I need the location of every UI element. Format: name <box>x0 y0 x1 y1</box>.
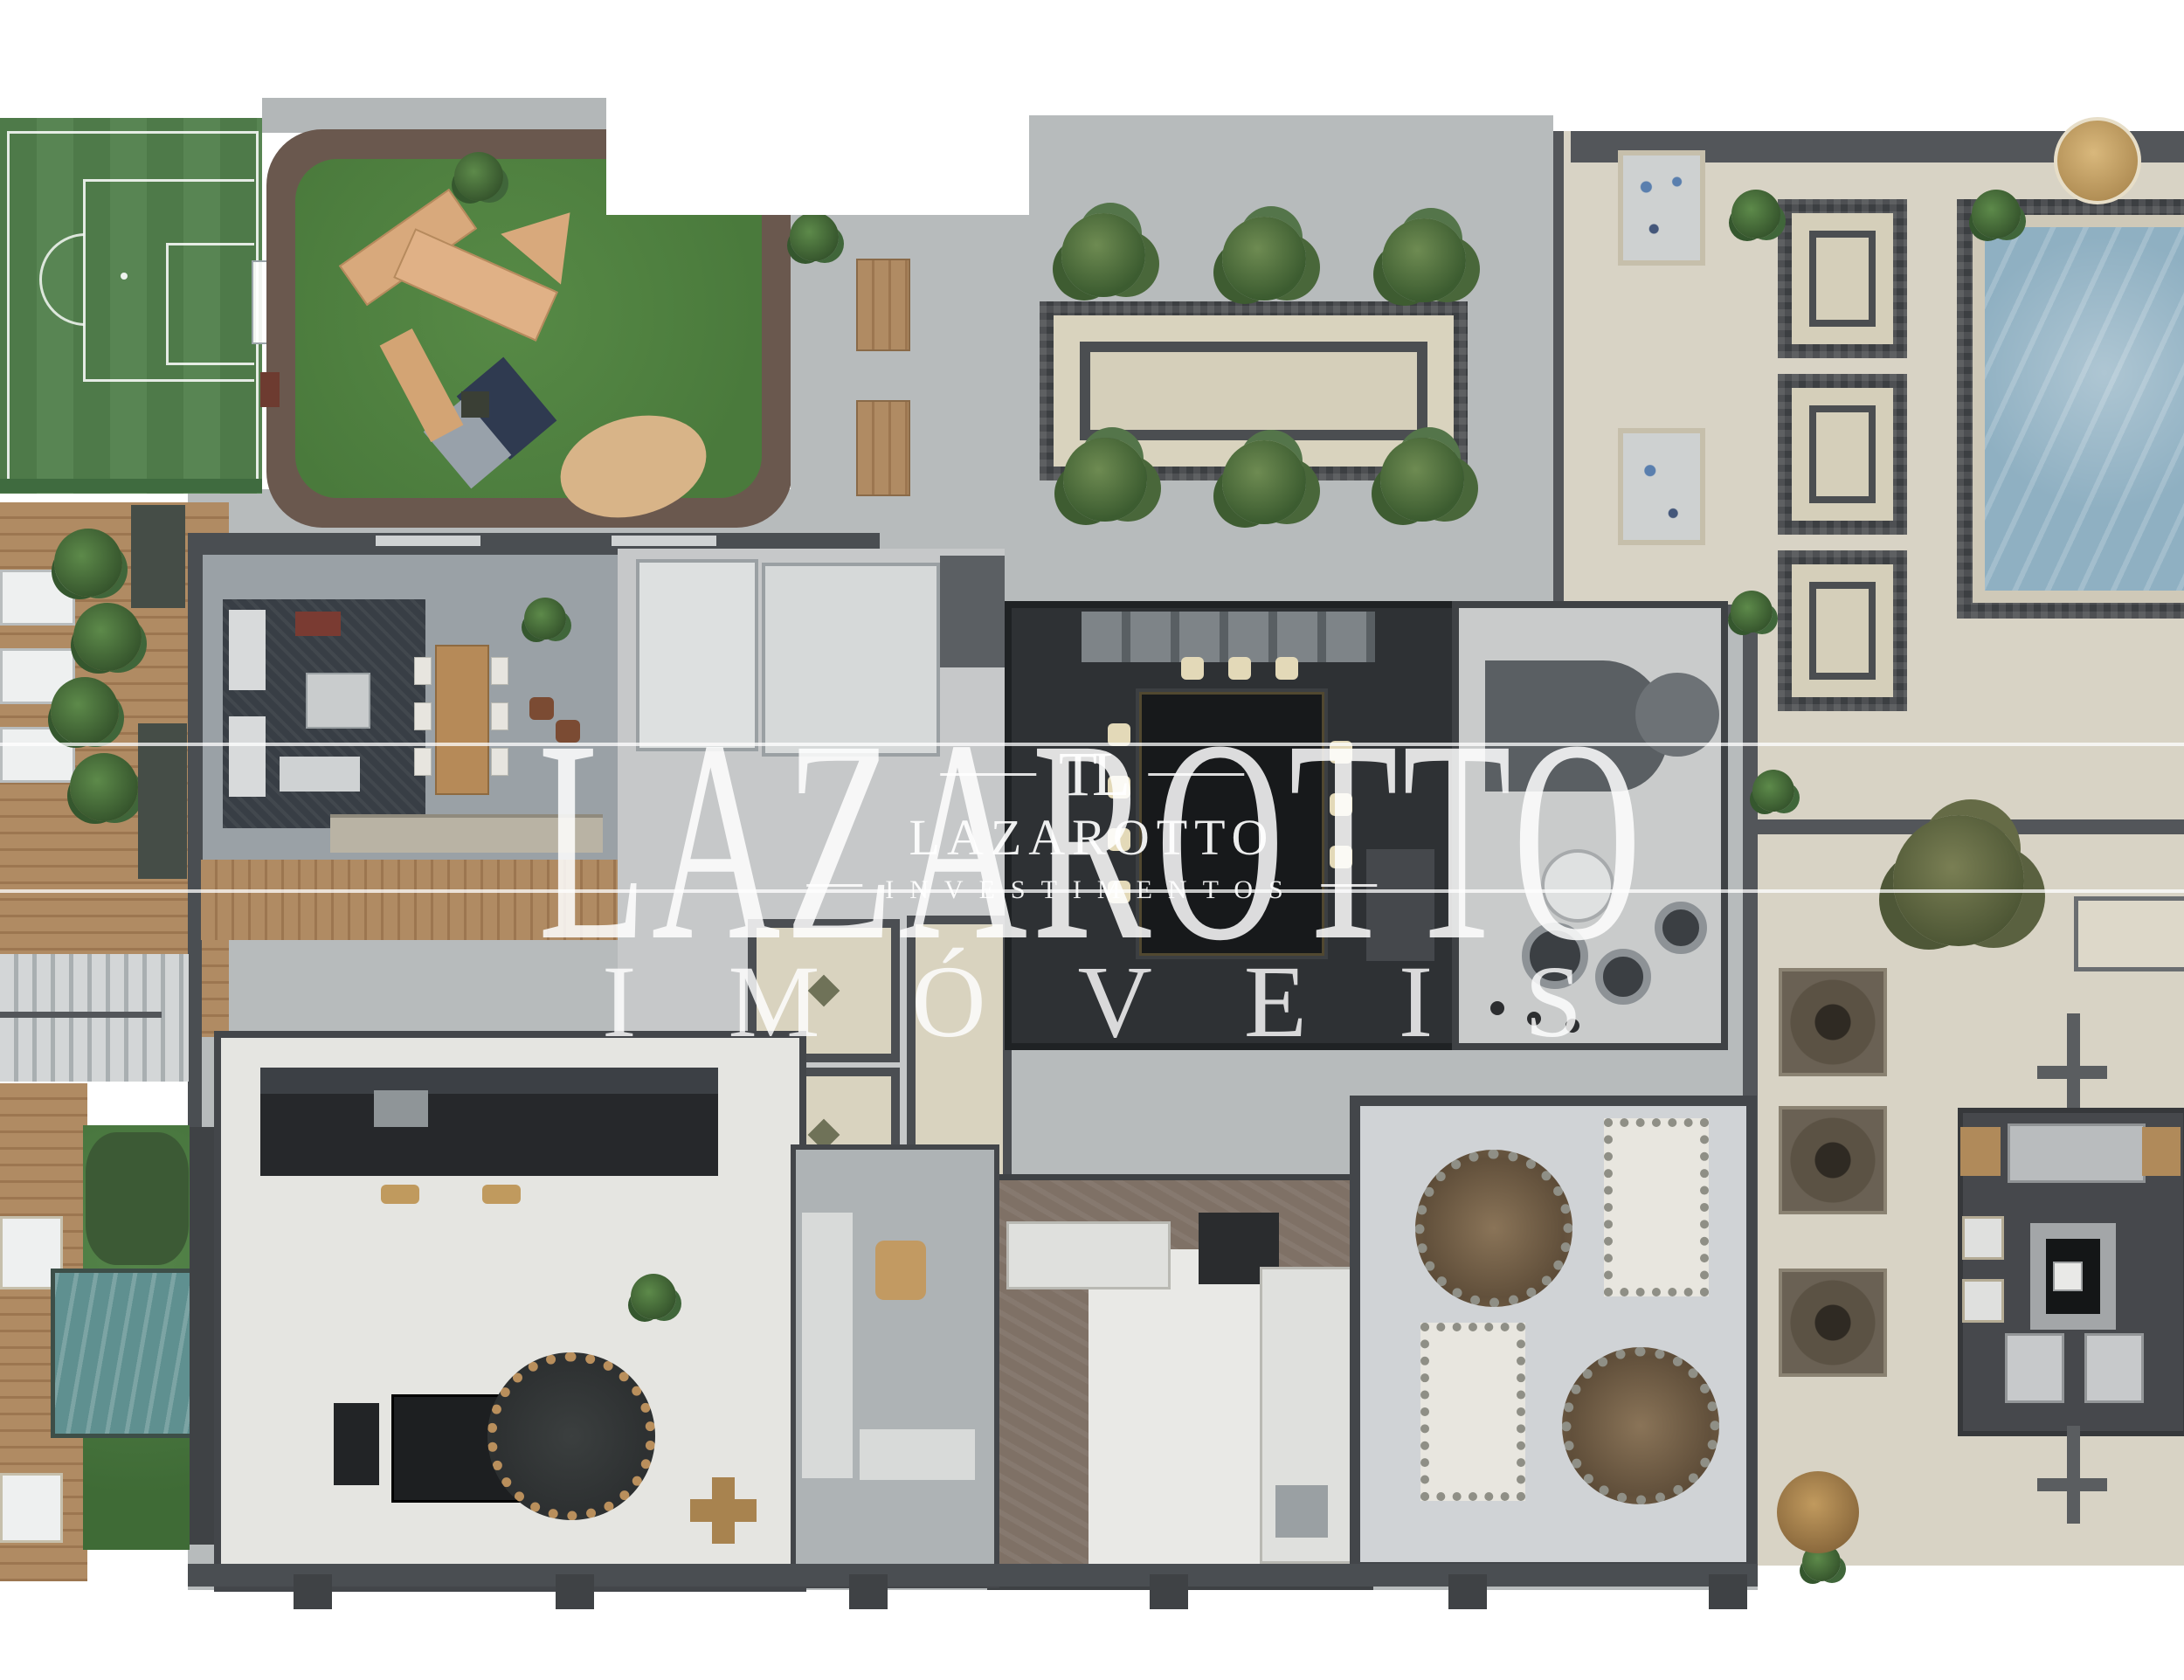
service-counter <box>860 1429 975 1480</box>
window-segment <box>612 536 716 546</box>
logo-tagline-row: INVESTIMENTOS <box>806 867 1377 905</box>
pillar <box>294 1574 332 1609</box>
chair <box>414 748 432 776</box>
chair <box>491 748 508 776</box>
round-dining-table <box>1562 1347 1719 1504</box>
garden-wall <box>190 1127 214 1545</box>
gold-table-bar <box>712 1477 735 1544</box>
plunge-pool <box>51 1269 194 1438</box>
logo-rule-right <box>1148 773 1244 776</box>
field-penalty-spot <box>121 273 128 280</box>
plaza-planter-center <box>1090 352 1417 430</box>
square-planter-3 <box>1779 1269 1887 1377</box>
logo-name: LAZAROTTO <box>909 808 1275 867</box>
path-marker <box>2037 1066 2107 1079</box>
picnic-bench-2 <box>856 400 910 496</box>
playground-bench-dark <box>461 391 489 418</box>
kitchen-white-floor <box>1089 1249 1260 1578</box>
playground-bench-red <box>260 372 280 407</box>
lounge-sofa <box>229 716 266 797</box>
service-counter <box>802 1213 853 1478</box>
pillar <box>849 1574 888 1609</box>
lounge-armchair <box>2005 1333 2064 1403</box>
dark-marble-counter <box>260 1068 718 1176</box>
bush <box>1972 190 2021 239</box>
square-planter-2 <box>1779 1106 1887 1214</box>
logo-rule-left <box>940 773 1036 776</box>
field-goal-box <box>166 243 254 365</box>
tree <box>1222 440 1306 524</box>
bar-stool <box>1275 657 1298 680</box>
lounge-side-table <box>1962 1279 2004 1323</box>
pillar <box>1448 1574 1487 1609</box>
square-planter-1 <box>1779 968 1887 1076</box>
rect-dining-table <box>1604 1118 1709 1296</box>
counter-stool <box>381 1185 419 1204</box>
accent-ottoman <box>295 612 341 636</box>
logo-dash-left <box>806 884 862 887</box>
sun-lounger <box>0 1473 63 1543</box>
logo-tagline: INVESTIMENTOS <box>885 875 1298 905</box>
picnic-bench-1 <box>856 259 910 351</box>
kitchen-counter <box>1006 1221 1171 1289</box>
logo-monogram: TL <box>1059 746 1125 803</box>
watermark-logo: TL LAZAROTTO INVESTIMENTOS <box>806 746 1377 905</box>
pillar <box>1150 1574 1188 1609</box>
garden-hedge <box>86 1132 189 1265</box>
shrub <box>73 603 142 671</box>
garden-bench <box>2074 896 2184 971</box>
chair <box>491 702 508 730</box>
pillar <box>556 1574 594 1609</box>
counter-stool <box>482 1185 521 1204</box>
spa-cabana-2 <box>1618 428 1705 545</box>
lounge-sofa <box>280 757 360 792</box>
bush <box>1752 770 1794 812</box>
window-segment <box>376 536 480 546</box>
gold-fire-bowl <box>1777 1471 1859 1553</box>
side-table-wood <box>1960 1127 2001 1176</box>
chair <box>414 702 432 730</box>
rect-dining-table <box>1420 1323 1525 1501</box>
floor-plan: LAZAROTTO TL LAZAROTTO INVESTIMENTOS IMÓ… <box>0 0 2184 1680</box>
lounge-armchair <box>2084 1333 2144 1403</box>
south-wall <box>188 1564 1758 1587</box>
tree <box>1380 438 1464 522</box>
tree <box>1061 213 1145 297</box>
tree <box>1222 217 1306 301</box>
path-marker <box>2037 1478 2107 1491</box>
olive-tree <box>1893 815 2024 946</box>
roof-notch <box>606 0 1029 215</box>
kitchen-sink <box>374 1090 428 1127</box>
hedge <box>131 505 185 608</box>
bush <box>1731 190 1780 239</box>
bush <box>790 212 839 261</box>
elevator-block <box>940 556 1005 667</box>
lounge-sofa <box>229 610 266 690</box>
stairs <box>0 954 189 1082</box>
family-dining-table <box>487 1352 655 1520</box>
lounge-side-table <box>1962 1216 2004 1260</box>
bush <box>1731 591 1773 633</box>
games-table <box>435 645 489 795</box>
bush <box>454 152 503 201</box>
sideboard <box>334 1403 379 1485</box>
side-table-wood <box>2142 1127 2181 1176</box>
lounge-sofa <box>2008 1123 2146 1183</box>
mosaic-frame-2 <box>1778 374 1907 535</box>
chair <box>491 657 508 685</box>
watermark-imoveis: IMÓVEIS <box>510 951 1674 1054</box>
potted-plant <box>524 598 566 640</box>
potted-plant <box>631 1274 676 1319</box>
bar-cabinets <box>1082 612 1375 662</box>
field-edge-strip <box>0 479 262 493</box>
mosaic-frame-3 <box>1778 550 1907 711</box>
path-marker <box>2067 1013 2080 1108</box>
tan-armchair <box>875 1241 926 1300</box>
tree <box>1063 438 1147 522</box>
frame-core <box>1809 582 1876 680</box>
spa-cabana-1 <box>1618 150 1705 266</box>
shrub <box>51 677 119 745</box>
path-marker <box>2067 1426 2080 1524</box>
shrub <box>70 753 138 821</box>
mosaic-frame-1 <box>1778 199 1907 358</box>
frame-core <box>1809 231 1876 327</box>
swimming-pool <box>1985 227 2184 591</box>
lounge-north-wall <box>188 533 880 549</box>
kitchen-steel-unit <box>1275 1485 1328 1538</box>
tree <box>1382 218 1466 302</box>
frame-core <box>1809 405 1876 503</box>
logo-dash-right <box>1322 884 1378 887</box>
logo-monogram-row: TL <box>940 746 1244 803</box>
hedge <box>138 723 187 879</box>
round-dining-table <box>1415 1150 1572 1307</box>
fire-pit-burner <box>2053 1262 2083 1291</box>
stair-rail <box>0 1012 162 1018</box>
bar-stool <box>1228 657 1251 680</box>
shrub <box>54 529 122 597</box>
parasol-table <box>2054 117 2141 204</box>
pillar <box>1709 1574 1747 1609</box>
chair <box>414 657 432 685</box>
bar-stool <box>1181 657 1204 680</box>
coffee-table <box>306 673 370 729</box>
